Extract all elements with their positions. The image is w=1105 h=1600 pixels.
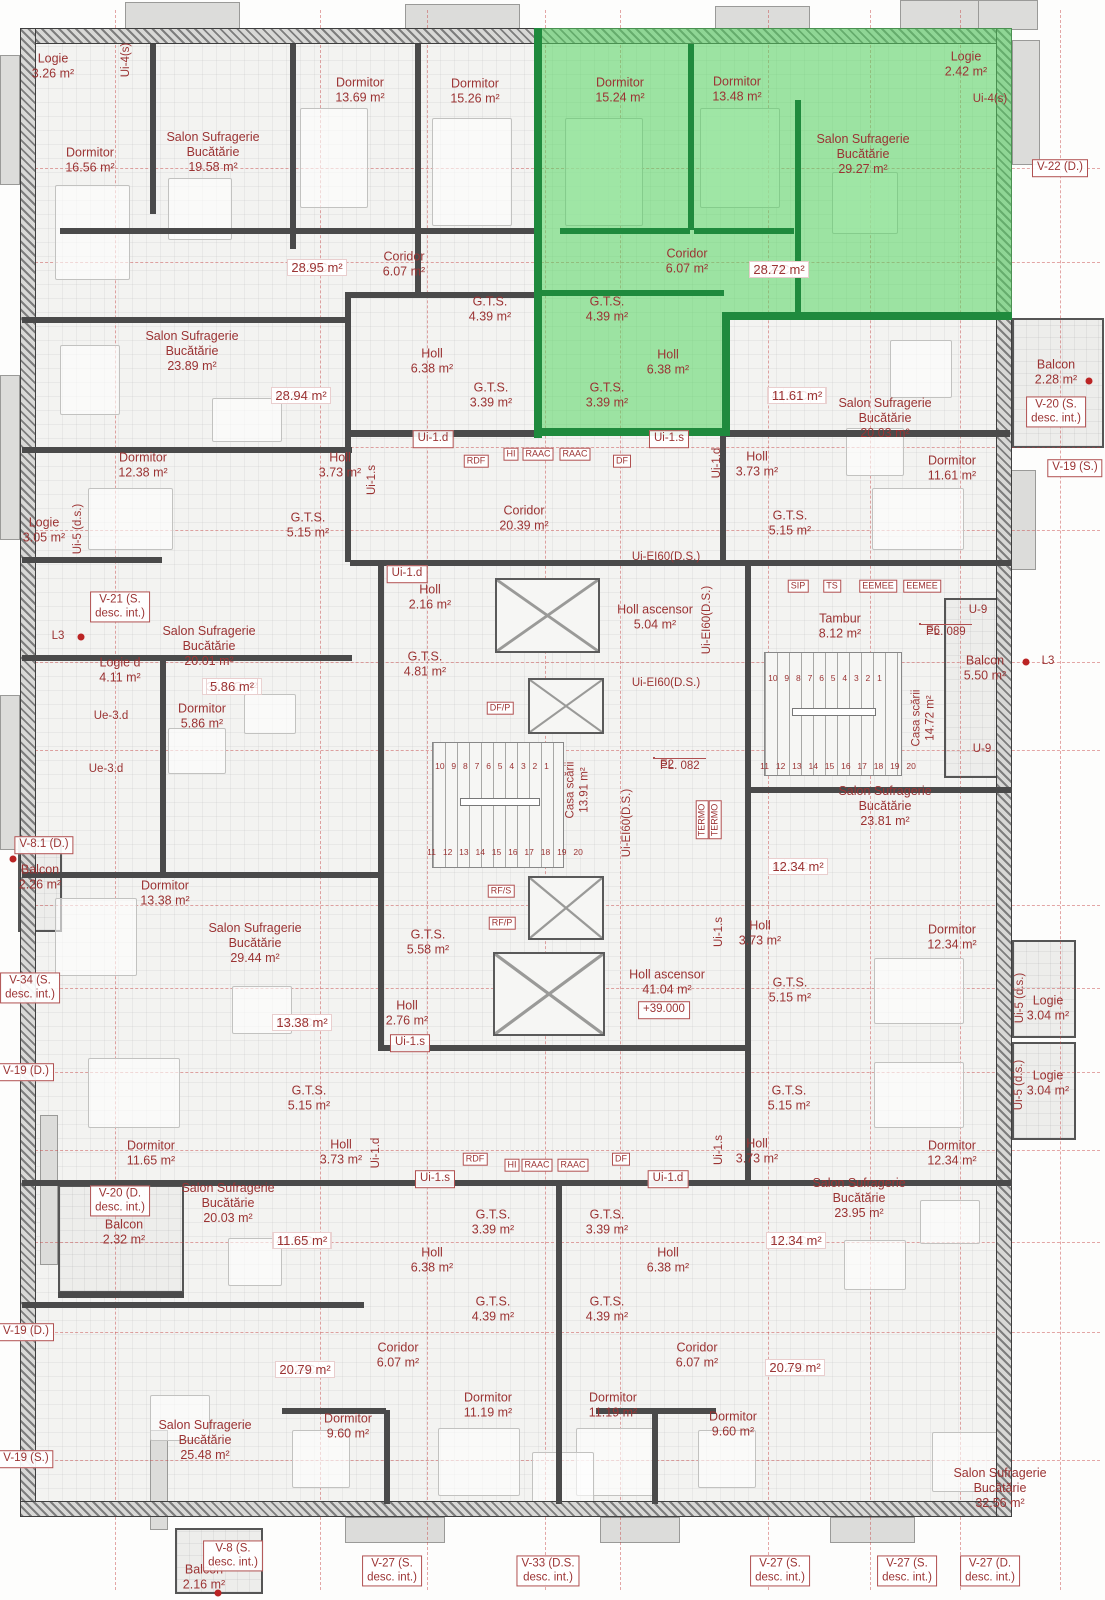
axis-line: [427, 10, 428, 1590]
window-ref-label: V-8 (S.desc. int.): [203, 1540, 263, 1571]
room-label: Dormitor12.38 m²: [118, 450, 167, 480]
green-wall-segment: [795, 100, 801, 316]
window-ref-label: V-19 (S.): [1047, 459, 1102, 477]
door-ref-label: L3: [1042, 655, 1055, 669]
elevator-shaft: [528, 678, 604, 734]
door-ref-label-vertical: Ui-1.d: [370, 1138, 384, 1169]
door-ref-label-vertical: Ui-1.s: [366, 465, 380, 495]
stair-handrail: [792, 708, 876, 716]
room-label: Salon SufragerieBucătărie23.81 m²: [838, 784, 931, 828]
door-ref-label-vertical: Casa scării13.91 m²: [564, 762, 591, 819]
room-label: Tambur8.12 m²: [819, 611, 861, 641]
door-ref-label: U-9: [969, 604, 988, 618]
room-label: Dormitor12.34 m²: [927, 922, 976, 952]
wall-segment: [290, 44, 296, 249]
window-ref-label: V-22 (D.): [1032, 159, 1088, 177]
room-label: G.T.S.5.58 m²: [407, 927, 449, 957]
room-label: Balcon2.32 m²: [103, 1217, 145, 1247]
axis-line: [320, 10, 321, 1590]
roof-overhang: [125, 2, 240, 30]
utility-label: RAAC: [521, 1159, 552, 1172]
roof-overhang: [600, 1517, 680, 1543]
wall-segment: [384, 1410, 390, 1504]
room-label: G.T.S.5.15 m²: [769, 975, 811, 1005]
wall-segment: [58, 1292, 184, 1298]
roof-overhang: [0, 55, 20, 185]
stair-step-numbers: 11 12 13 14 15 16 17 18 19 20: [760, 761, 916, 771]
room-label: Salon SufragerieBucătărie25.48 m²: [158, 1418, 251, 1462]
room-label: G.T.S.4.39 m²: [586, 1294, 628, 1324]
utility-label: TS: [823, 580, 841, 593]
room-label: G.T.S.3.39 m²: [470, 380, 512, 410]
room-label: Dormitor15.24 m²: [595, 75, 644, 105]
door-ref-label-vertical: Ui-EI60(D.S.): [701, 586, 715, 654]
room-label: Coridor20.39 m²: [499, 503, 548, 533]
room-label: Dormitor12.34 m²: [927, 1138, 976, 1168]
window-ref-label: Ui-1.s: [649, 430, 689, 448]
floor-plan-canvas: Logie3.26 m²Dormitor16.56 m²Salon Sufrag…: [0, 0, 1105, 1600]
room-label: Logie3.26 m²: [32, 51, 74, 81]
elevator-shaft: [493, 952, 605, 1036]
elevator-shaft: [528, 876, 604, 940]
stair-handrail: [460, 798, 540, 806]
axis-dot: [1023, 659, 1030, 666]
room-label: Holl3.73 m²: [736, 1136, 778, 1166]
furniture: [872, 488, 964, 550]
room-label: G.T.S.4.39 m²: [469, 294, 511, 324]
utility-label: RF/P: [489, 917, 516, 930]
floor-plan: Logie3.26 m²Dormitor16.56 m²Salon Sufrag…: [0, 0, 1105, 1600]
door-ref-label-vertical: Ui-1.s: [713, 917, 727, 947]
utility-label: RF/S: [488, 885, 515, 898]
room-label: Holl3.73 m²: [319, 450, 361, 480]
room-label: Dormitor11.65 m²: [127, 1138, 175, 1168]
roof-overhang: [0, 695, 20, 850]
utility-label: EEMEE: [903, 580, 941, 593]
room-label: G.T.S.3.39 m²: [586, 380, 628, 410]
utility-label: EEMEE: [859, 580, 897, 593]
roof-overhang: [345, 1517, 445, 1543]
green-wall-segment: [534, 28, 542, 438]
utility-label: RDF: [463, 1153, 488, 1166]
axis-dot: [78, 634, 85, 641]
room-label: Salon SufragerieBucătărie29.27 m²: [816, 132, 909, 176]
furniture: [432, 118, 512, 226]
room-label: Holl6.38 m²: [411, 1245, 453, 1275]
room-label: Dormitor16.56 m²: [65, 145, 114, 175]
utility-label: RDF: [464, 455, 489, 468]
green-wall-segment: [560, 228, 690, 234]
furniture: [890, 340, 952, 398]
shaft-cross-icon: [530, 680, 602, 732]
utility-label: RAAC: [559, 448, 590, 461]
room-label: G.T.S.5.15 m²: [288, 1083, 330, 1113]
room-label: G.T.S.4.81 m²: [404, 649, 446, 679]
exterior-wall: [20, 1501, 1012, 1517]
room-label: G.T.S.3.39 m²: [586, 1207, 628, 1237]
room-label: Logie3.04 m²: [1027, 993, 1069, 1023]
furniture: [168, 728, 226, 774]
roof-overhang: [978, 0, 1038, 30]
roof-overhang: [1012, 40, 1040, 165]
utility-label: RAAC: [522, 448, 553, 461]
window-ref-label: V-19 (D.): [0, 1063, 54, 1081]
roof-overhang: [1008, 470, 1036, 570]
furniture: [55, 898, 137, 976]
door-ref-label: U-9: [973, 743, 992, 757]
room-label: Salon SufragerieBucătărie23.89 m²: [145, 329, 238, 373]
furniture: [212, 398, 282, 442]
window-ref-label: V-27 (D.desc. int.): [960, 1555, 1020, 1586]
furniture: [920, 1200, 980, 1244]
furniture: [88, 1058, 180, 1128]
window-ref-label: V-27 (S.desc. int.): [362, 1555, 422, 1586]
exterior-wall: [20, 28, 36, 1517]
door-ref-label-vertical: Ui-4(s): [120, 43, 134, 78]
room-label: Dormitor13.48 m²: [712, 74, 761, 104]
wall-segment: [345, 292, 351, 562]
door-ref-label: Ue-3.d: [89, 763, 124, 777]
roof-overhang: [715, 6, 810, 30]
room-label: Holl2.16 m²: [409, 582, 451, 612]
wall-segment: [22, 557, 162, 563]
furniture: [300, 108, 368, 208]
wall-segment: [22, 317, 347, 323]
room-label: Holl ascensor5.04 m²: [617, 602, 693, 632]
room-label: Holl2.76 m²: [386, 998, 428, 1028]
stair-step-numbers: 10 9 8 7 6 5 4 3 2 1: [435, 761, 549, 771]
door-ref-label-vertical: Ui-1.s: [713, 1135, 727, 1165]
room-label: G.T.S.5.15 m²: [768, 1083, 810, 1113]
shaft-cross-icon: [497, 580, 598, 651]
furniture: [60, 345, 120, 415]
room-label: Holl3.73 m²: [739, 918, 781, 948]
furniture: [88, 488, 173, 550]
utility-label: DF: [612, 1153, 630, 1166]
axis-dot: [1086, 378, 1093, 385]
green-wall-segment: [540, 290, 724, 296]
window-ref-label: Ui-1.s: [390, 1034, 430, 1052]
room-label: G.T.S.5.15 m²: [769, 508, 811, 538]
furniture: [532, 1452, 594, 1508]
room-label: Dormitor15.26 m²: [450, 76, 499, 106]
termo-label: TERMO: [709, 801, 722, 840]
green-wall-segment: [722, 312, 730, 436]
roof-overhang: [900, 0, 985, 30]
utility-label: RAAC: [557, 1159, 588, 1172]
wall-segment: [160, 661, 166, 875]
axis-line: [1060, 10, 1061, 1590]
termo-label: TERMO: [696, 801, 709, 840]
window-ref-label: V-20 (S.desc. int.): [1026, 396, 1086, 427]
room-label: Dormitor9.60 m²: [709, 1409, 757, 1439]
window-ref-label: V-8.1 (D.): [14, 836, 73, 854]
window-ref-label: Ui-1.d: [648, 1170, 689, 1188]
elevator-ref-label: E2PL. 082: [653, 757, 655, 759]
room-label: Holl6.38 m²: [411, 346, 453, 376]
elevator-shaft: [495, 578, 600, 653]
room-label: G.T.S.3.39 m²: [472, 1207, 514, 1237]
furniture: [438, 1428, 520, 1496]
wall-segment: [652, 1410, 658, 1504]
window-ref-label: Ui-1.d: [387, 565, 428, 583]
window-ref-label: V-19 (D.): [0, 1323, 54, 1341]
roof-overhang: [0, 375, 20, 540]
utility-label: DF/P: [487, 702, 514, 715]
furniture: [244, 694, 296, 734]
wall-segment: [22, 872, 382, 878]
window-ref-label: V-34 (S.desc. int.): [0, 972, 60, 1003]
axis-dot: [215, 1590, 222, 1597]
door-ref-label: Ui-EI60(D.S.): [632, 677, 700, 691]
wall-segment: [150, 44, 156, 214]
room-label: Logie3.05 m²: [23, 515, 65, 545]
room-label: Dormitor5.86 m²: [178, 701, 226, 731]
door-ref-label: L3: [52, 630, 65, 644]
room-label: G.T.S.4.39 m²: [586, 294, 628, 324]
shaft-cross-icon: [495, 954, 603, 1034]
utility-label: HI: [505, 1159, 520, 1172]
wall-segment: [22, 1302, 364, 1308]
door-ref-label: Ui-4(s): [973, 93, 1008, 107]
room-label: Dormitor13.69 m²: [335, 75, 384, 105]
room-label: Coridor6.07 m²: [377, 1340, 419, 1370]
window-ref-label: V-33 (D.S.desc. int.): [516, 1555, 579, 1586]
window-ref-label: V-20 (D.desc. int.): [90, 1185, 150, 1216]
room-label: Holl6.38 m²: [647, 347, 689, 377]
room-label: Logie2.42 m²: [945, 49, 987, 79]
door-ref-label: Ue-3.d: [94, 710, 129, 724]
room-label: Holl ascensor41.04 m²: [629, 967, 705, 997]
green-wall-segment: [694, 228, 794, 234]
room-label: G.T.S.5.15 m²: [287, 510, 329, 540]
wall-segment: [22, 447, 352, 453]
door-ref-label-vertical: Ui-5 (d.s.): [1014, 973, 1028, 1023]
room-label: Salon SufragerieBucătărie20.03 m²: [838, 396, 931, 440]
wall-segment: [378, 565, 384, 1047]
wall-segment: [60, 228, 538, 234]
utility-label: DF: [613, 455, 631, 468]
green-wall-segment: [726, 312, 1012, 320]
door-ref-label-vertical: Casa scării14.72 m²: [910, 690, 937, 747]
room-label: Salon SufragerieBucătărie29.44 m²: [208, 921, 301, 965]
axis-dot: [10, 856, 17, 863]
window-ref-label: Ui-1.s: [415, 1170, 455, 1188]
window-ref-label: V-19 (S.): [0, 1450, 54, 1468]
room-label: Salon SufragerieBucătărie19.58 m²: [166, 130, 259, 174]
room-label: Salon SufragerieBucătărie20.03 m²: [181, 1181, 274, 1225]
door-ref-label-vertical: Ui-5 (d.s.): [72, 504, 86, 554]
green-wall-segment: [534, 428, 730, 436]
roof-overhang: [830, 1517, 915, 1543]
room-label: Dormitor11.19 m²: [464, 1390, 512, 1420]
door-ref-label-vertical: Ui-1.d: [711, 448, 725, 479]
window-ref-label: V-21 (S.desc. int.): [90, 591, 150, 622]
elevator-ref-label: E6PL. 089: [919, 623, 921, 625]
room-label: G.T.S.4.39 m²: [472, 1294, 514, 1324]
room-label: Coridor6.07 m²: [676, 1340, 718, 1370]
furniture: [874, 958, 964, 1024]
stair-step-numbers: 10 9 8 7 6 5 4 3 2 1: [768, 673, 882, 683]
utility-label: HI: [504, 448, 519, 461]
room-label: Coridor6.07 m²: [666, 246, 708, 276]
door-ref-label: Ui-EI60(D.S.): [632, 551, 700, 565]
room-label: Holl6.38 m²: [647, 1245, 689, 1275]
door-ref-label-vertical: Ui-5 (d.s.): [1013, 1060, 1027, 1110]
room-label: Balcon5.50 m²: [964, 653, 1006, 683]
room-label: Dormitor13.38 m²: [140, 878, 189, 908]
stair-step-numbers: 11 12 13 14 15 16 17 18 19 20: [427, 847, 583, 857]
wall-segment: [745, 565, 751, 1047]
room-label: Coridor6.07 m²: [383, 249, 425, 279]
window-ref-label: V-27 (S.desc. int.): [750, 1555, 810, 1586]
room-label: Dormitor11.61 m²: [928, 453, 976, 483]
room-label: Balcon2.28 m²: [1035, 357, 1077, 387]
room-label: Dormitor9.60 m²: [324, 1411, 372, 1441]
room-label: Logie3.04 m²: [1027, 1068, 1069, 1098]
room-label: Dormitor11.19 m²: [589, 1390, 637, 1420]
wall-segment: [556, 1186, 562, 1504]
wall-segment: [378, 1045, 751, 1051]
door-ref-label-vertical: Ui-EI60(D.S.): [621, 789, 635, 857]
window-ref-label: V-27 (S.desc. int.): [877, 1555, 937, 1586]
roof-overhang: [405, 4, 520, 30]
shaft-cross-icon: [530, 878, 602, 938]
utility-label: SIP: [788, 580, 809, 593]
room-label: Balcon2.26 m²: [19, 862, 61, 892]
wall-segment: [350, 292, 540, 298]
room-label: Holl3.73 m²: [736, 449, 778, 479]
window-ref-label: Ui-1.d: [413, 430, 454, 448]
furniture: [844, 1240, 906, 1290]
green-wall-segment: [688, 44, 694, 230]
room-label: Logie d4.11 m²: [99, 655, 140, 685]
furniture: [874, 1062, 964, 1128]
window-ref-label: +39.000: [638, 1001, 690, 1019]
room-label: Holl3.73 m²: [320, 1137, 362, 1167]
room-label: Salon SufragerieBucătărie23.95 m²: [812, 1176, 905, 1220]
room-label: Salon SufragerieBucătărie32.56 m²: [953, 1466, 1046, 1510]
room-label: Salon SufragerieBucătărie20.01 m²: [162, 624, 255, 668]
